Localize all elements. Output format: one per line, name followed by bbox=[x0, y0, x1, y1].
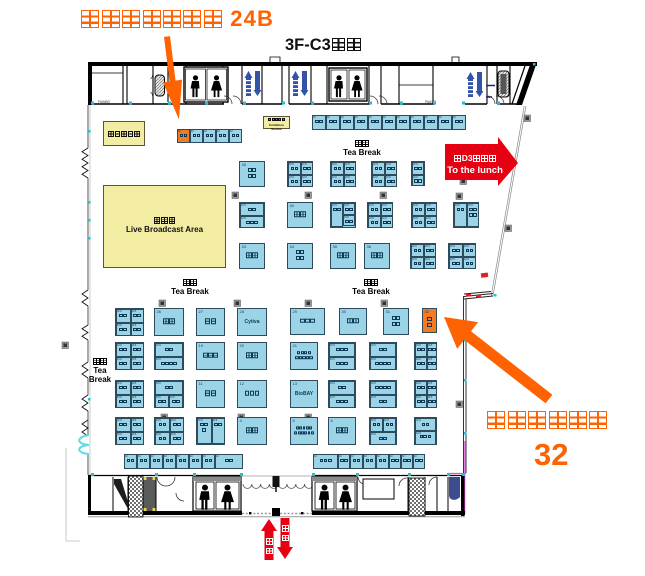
svg-text:PIANBO: PIANBO bbox=[98, 100, 111, 104]
